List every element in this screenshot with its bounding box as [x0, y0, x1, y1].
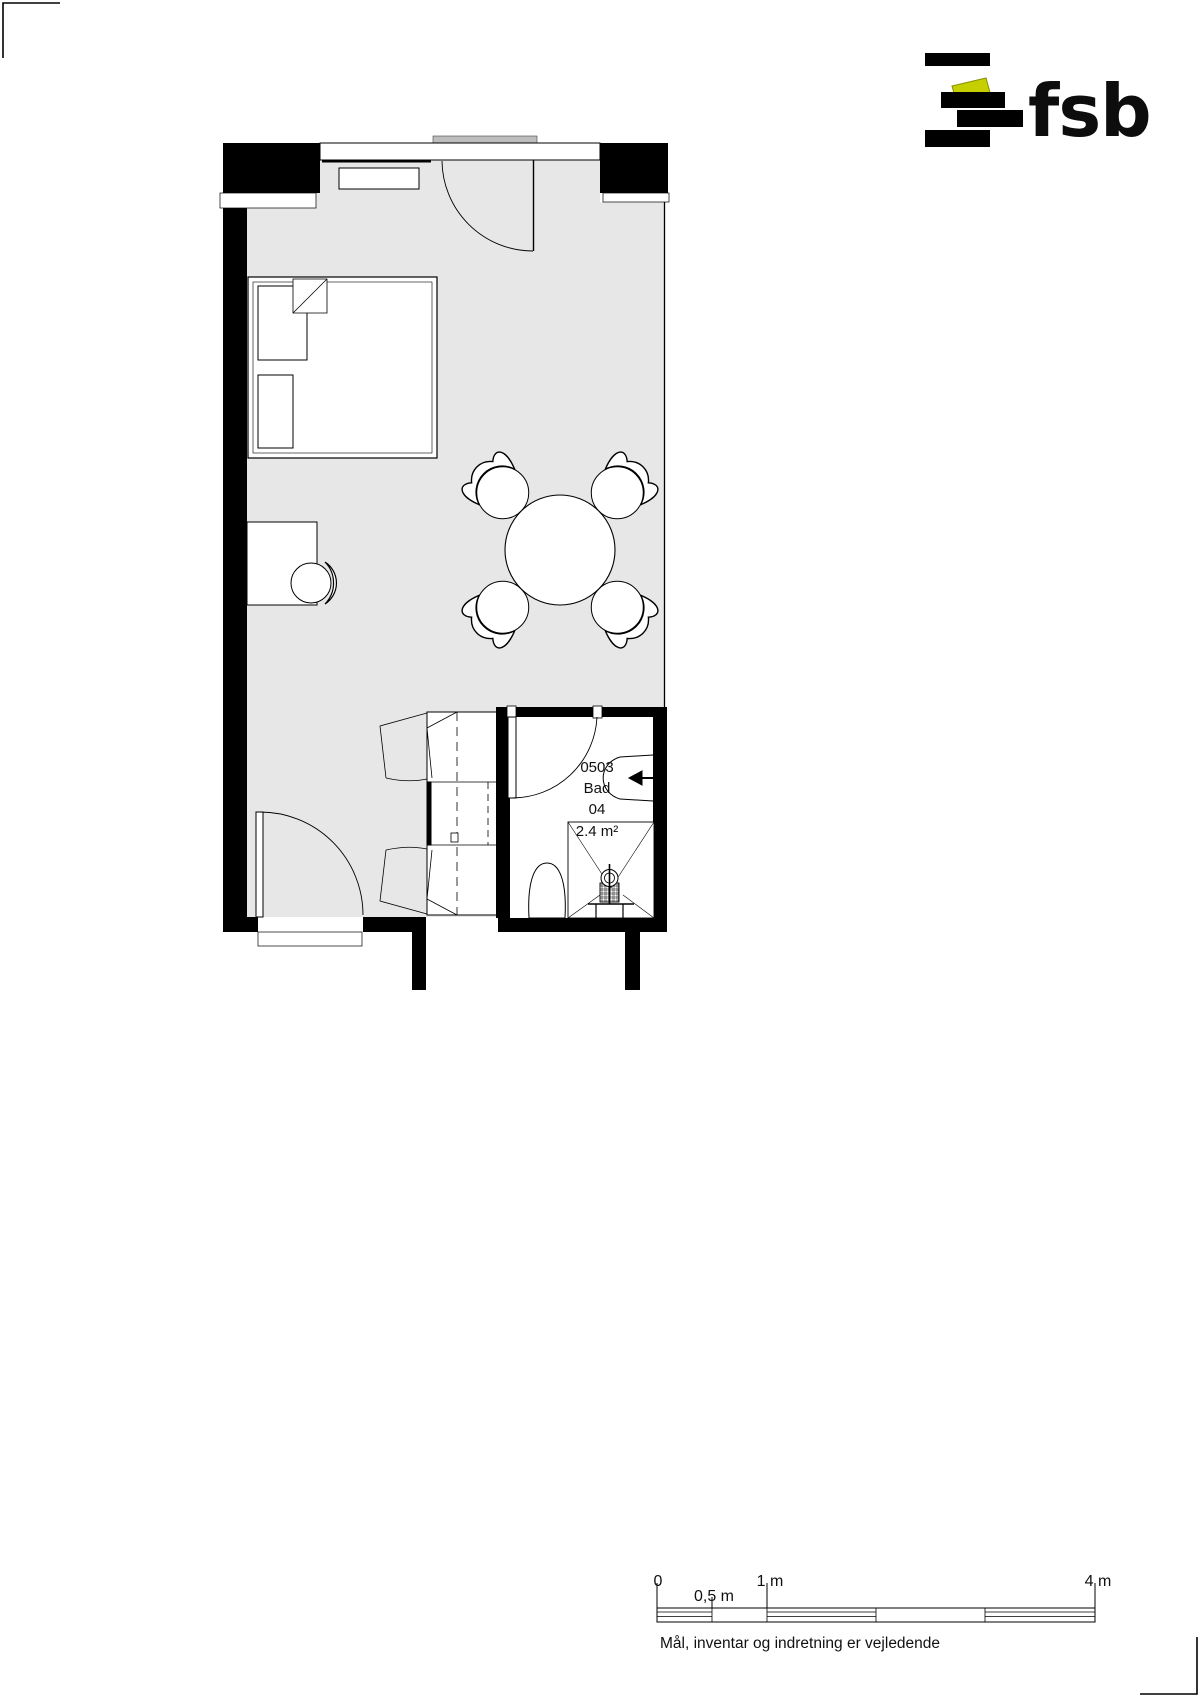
bathroom-id: 0503	[580, 759, 613, 776]
wall-left	[223, 208, 247, 932]
floor-plan-canvas: fsb	[0, 0, 1200, 1702]
wall-top-right-block	[600, 143, 668, 193]
bathroom-wall-right	[653, 707, 667, 932]
scale-label-0: 0	[654, 1573, 663, 1590]
wardrobe-body	[427, 712, 497, 915]
logo-bar-3	[957, 110, 1023, 127]
wall-bottom-left	[247, 917, 258, 932]
wall-bottom-mid	[363, 917, 412, 932]
bathroom-door-jamb-right	[593, 706, 602, 718]
bathroom-door-leaf	[508, 717, 516, 798]
corner-mark-top-left	[3, 3, 60, 58]
wall-niche-top-left	[220, 193, 316, 208]
logo-wordmark: fsb	[1028, 69, 1151, 153]
desk-chair	[291, 562, 336, 604]
wardrobe-front-edge	[427, 782, 431, 845]
wall-stub-right	[625, 932, 640, 990]
logo-bar-1	[925, 53, 990, 66]
wall-top-left-block	[223, 143, 320, 193]
bathroom-area: 2.4 m²	[576, 823, 619, 840]
washbasin-tap	[629, 771, 642, 785]
duvet-folded-corner	[293, 279, 327, 313]
wall-stub-left	[412, 917, 426, 990]
radiator	[339, 168, 419, 189]
disclaimer-text: Mål, inventar og indretning er vejledend…	[660, 1635, 940, 1652]
bed	[248, 277, 437, 458]
floor-plan: 0503 Bad 04 2.4 m²	[220, 136, 669, 990]
fsb-logo: fsb	[925, 53, 1151, 153]
toilet	[529, 863, 566, 918]
bathroom-wall-top	[496, 707, 667, 717]
bathroom-wall-bottom	[498, 918, 667, 932]
scale-label-0-5m: 0,5 m	[694, 1588, 734, 1605]
scale-label-4m: 4 m	[1085, 1573, 1112, 1590]
wall-niche-top-right	[603, 193, 669, 202]
bathroom-label: 0503 Bad 04 2.4 m²	[576, 759, 619, 840]
logo-bar-2	[941, 92, 1005, 108]
corner-mark-bottom-right	[1140, 1637, 1197, 1694]
scale-bar-labels: 0 0,5 m 1 m 4 m	[654, 1573, 1112, 1605]
bathroom-name: Bad	[584, 780, 611, 797]
dining-table	[505, 495, 615, 605]
entrance-door-leaf	[256, 812, 263, 917]
desk-chair-seat	[291, 563, 331, 603]
bathroom-number: 04	[589, 801, 606, 818]
scale-label-1m: 1 m	[757, 1573, 784, 1590]
drawing-sheet: fsb	[0, 0, 1200, 1702]
scale-bar: 0 0,5 m 1 m 4 m Mål, inventar og indretn…	[654, 1573, 1112, 1652]
top-window-wall	[320, 143, 600, 160]
logo-bar-4	[925, 130, 990, 147]
bathroom-door-jamb-left	[507, 706, 516, 718]
bathroom: 0503 Bad 04 2.4 m²	[496, 706, 667, 932]
entrance-threshold	[258, 932, 362, 946]
bed-pillow-bottom	[258, 375, 293, 448]
